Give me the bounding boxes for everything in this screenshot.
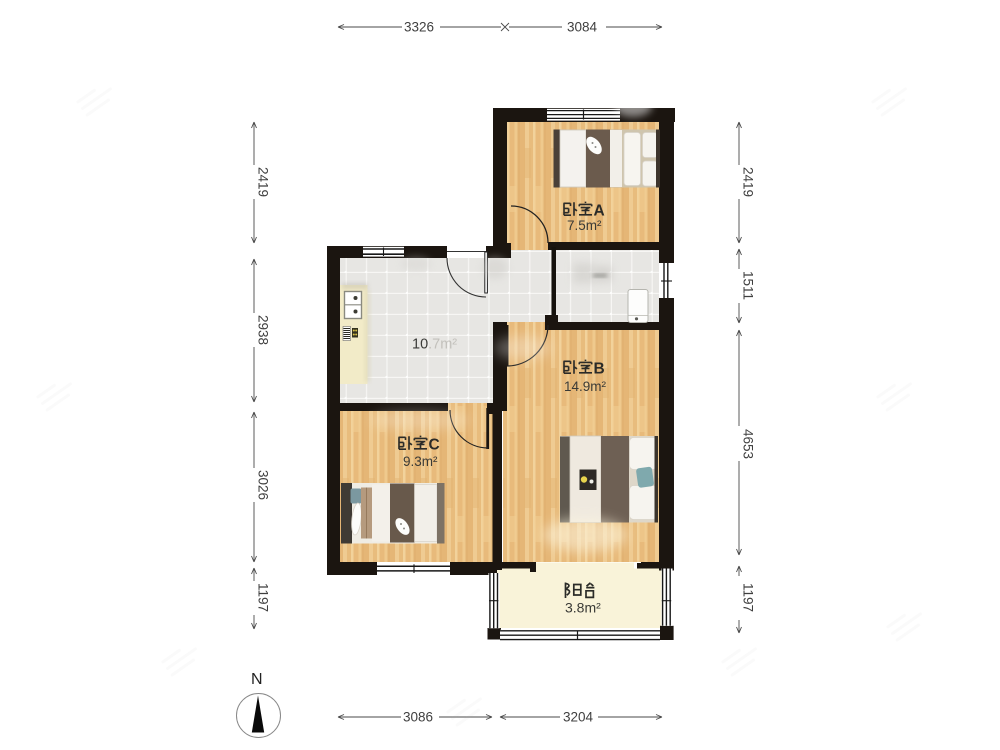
svg-text:2938: 2938 xyxy=(256,315,271,345)
svg-text:N: N xyxy=(251,671,263,688)
svg-text:3084: 3084 xyxy=(567,20,598,35)
svg-text:4653: 4653 xyxy=(741,429,756,459)
svg-text:3204: 3204 xyxy=(563,710,594,725)
svg-text:3026: 3026 xyxy=(256,470,271,500)
svg-text:3.8m²: 3.8m² xyxy=(565,600,601,616)
svg-text:3086: 3086 xyxy=(403,710,433,725)
svg-text:A: A xyxy=(594,202,605,219)
svg-text:C: C xyxy=(429,436,440,453)
svg-text:B: B xyxy=(594,360,605,377)
svg-text:2419: 2419 xyxy=(741,167,756,197)
svg-text:2419: 2419 xyxy=(256,167,271,197)
svg-text:9.3m²: 9.3m² xyxy=(403,454,438,469)
svg-text:1197: 1197 xyxy=(741,583,756,612)
svg-text:3326: 3326 xyxy=(404,20,434,35)
svg-text:10.7m²: 10.7m² xyxy=(412,337,457,353)
svg-text:1511: 1511 xyxy=(741,271,756,300)
svg-text:7.5m²: 7.5m² xyxy=(567,218,602,233)
svg-text:1197: 1197 xyxy=(256,583,271,612)
svg-text:14.9m²: 14.9m² xyxy=(564,379,607,394)
